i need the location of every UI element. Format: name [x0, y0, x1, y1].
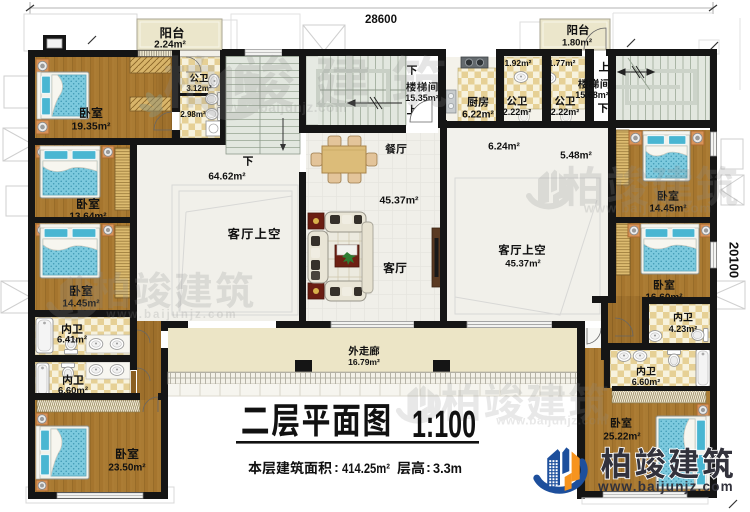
svg-text:64.62m²: 64.62m²: [208, 172, 246, 183]
svg-text:2.22m²: 2.22m²: [551, 107, 580, 117]
svg-text:6.24m²: 6.24m²: [488, 142, 520, 153]
svg-text:414.25m²: 414.25m²: [342, 461, 390, 476]
svg-text:1.77m²: 1.77m²: [549, 58, 576, 68]
svg-text::: :: [334, 459, 339, 475]
svg-text:2.24m²: 2.24m²: [154, 40, 186, 51]
svg-text:1.92m²: 1.92m²: [505, 58, 532, 68]
svg-text:25.22m²: 25.22m²: [603, 432, 641, 443]
svg-text:www.baijunjz.com: www.baijunjz.com: [583, 201, 712, 216]
svg-text:19.35m²: 19.35m²: [71, 121, 111, 133]
svg-text:5.48m²: 5.48m²: [560, 151, 592, 162]
svg-text:16.79m²: 16.79m²: [348, 357, 380, 367]
svg-text:1:100: 1:100: [412, 404, 476, 446]
svg-text:6.60m²: 6.60m²: [632, 377, 661, 387]
svg-text:6.41m²: 6.41m²: [57, 334, 87, 345]
svg-text:www.baijunjz.com: www.baijunjz.com: [222, 100, 348, 115]
svg-text:45.37m²: 45.37m²: [379, 195, 419, 207]
svg-text:20100: 20100: [726, 242, 741, 278]
svg-text:1.80m²: 1.80m²: [562, 37, 592, 48]
svg-text::: :: [426, 459, 431, 475]
svg-text:2.98m²: 2.98m²: [180, 110, 206, 119]
svg-text:4.23m²: 4.23m²: [669, 324, 698, 334]
svg-text:6.22m²: 6.22m²: [462, 110, 494, 121]
svg-text:www.baijunjz.com: www.baijunjz.com: [495, 413, 608, 427]
svg-text:3.3m: 3.3m: [433, 461, 462, 476]
svg-text:2.22m²: 2.22m²: [503, 107, 532, 117]
svg-text:www.baijunjz.com: www.baijunjz.com: [105, 309, 237, 321]
svg-text:28600: 28600: [365, 14, 397, 26]
svg-text:23.50m²: 23.50m²: [108, 463, 146, 474]
svg-text:15.68m²: 15.68m²: [575, 90, 609, 100]
svg-text:45.37m²: 45.37m²: [505, 258, 540, 269]
svg-text:www.baijunjz.com: www.baijunjz.com: [597, 479, 734, 494]
